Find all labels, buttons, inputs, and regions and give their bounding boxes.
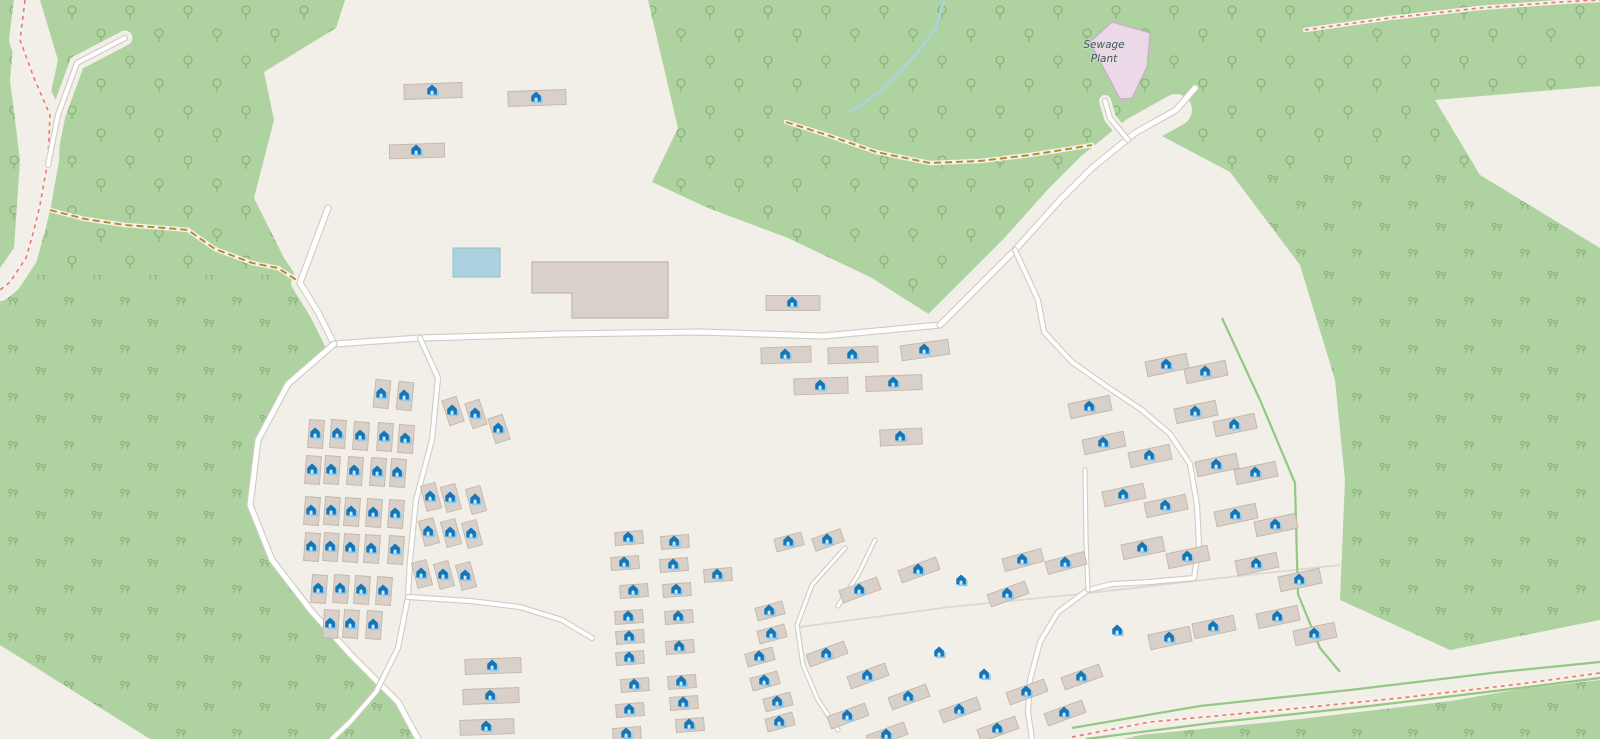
cabin xyxy=(440,484,461,513)
cabin xyxy=(465,486,486,515)
cabin xyxy=(615,531,644,546)
cabin xyxy=(1166,545,1210,568)
cabin xyxy=(1144,494,1188,517)
cabin xyxy=(396,381,414,410)
cabin xyxy=(1234,461,1278,484)
cabin xyxy=(388,536,405,565)
cabin xyxy=(1293,622,1337,645)
cabin xyxy=(1184,360,1228,383)
cabin xyxy=(939,697,981,723)
cabin xyxy=(898,557,940,583)
cabin xyxy=(508,89,566,106)
cabin xyxy=(750,671,780,691)
cabin xyxy=(755,601,785,621)
cabin xyxy=(660,558,689,573)
camp-inner-branch xyxy=(408,597,592,638)
cabin xyxy=(377,423,394,452)
map-canvas[interactable]: Sewage Plant xyxy=(0,0,1600,739)
cabin xyxy=(1195,453,1239,476)
cabin xyxy=(376,577,393,606)
cabin xyxy=(1256,605,1300,628)
cabin xyxy=(398,425,415,454)
cabin xyxy=(1082,431,1126,454)
cabin xyxy=(663,583,692,598)
cabin xyxy=(704,568,733,583)
cabin xyxy=(343,610,360,639)
cabin xyxy=(665,610,694,625)
cabin xyxy=(1044,700,1086,726)
cabin xyxy=(304,497,321,526)
cabin xyxy=(442,396,464,425)
cabin xyxy=(461,520,482,549)
cabin xyxy=(440,519,461,548)
cabin xyxy=(305,456,322,485)
cabin xyxy=(774,532,804,552)
cabin xyxy=(389,143,444,159)
main-building xyxy=(532,262,668,318)
cabin xyxy=(1145,353,1189,376)
cabin xyxy=(828,346,879,364)
cabin xyxy=(611,556,640,571)
cabin xyxy=(343,534,360,563)
cabin xyxy=(987,581,1029,607)
cabin xyxy=(354,576,371,605)
cabin xyxy=(847,663,889,689)
cabin xyxy=(1102,483,1146,506)
cabin xyxy=(794,377,849,395)
cabin xyxy=(620,584,649,599)
cabin xyxy=(745,647,775,667)
cabin xyxy=(364,535,381,564)
cabin xyxy=(676,718,705,733)
cabin xyxy=(757,624,787,644)
cabin xyxy=(460,719,514,736)
forest-symbols xyxy=(0,0,460,275)
cabin xyxy=(324,497,341,526)
cabin xyxy=(888,684,930,710)
cabin xyxy=(324,456,341,485)
cabin xyxy=(366,611,383,640)
cabin xyxy=(1068,395,1112,418)
cabin xyxy=(666,640,695,655)
cabin xyxy=(304,533,321,562)
cabin xyxy=(977,716,1019,739)
cabin xyxy=(900,339,950,361)
cabin xyxy=(615,610,644,625)
cabin xyxy=(827,703,869,729)
cabin xyxy=(404,82,462,99)
cabin xyxy=(488,414,510,443)
cabin xyxy=(621,678,650,693)
cabin xyxy=(323,610,340,639)
bottom-center-link-a xyxy=(797,548,845,730)
cabin xyxy=(1174,400,1218,423)
cabin xyxy=(1121,536,1165,559)
cabin xyxy=(839,577,881,603)
cabin xyxy=(373,379,391,408)
cabin xyxy=(1213,413,1257,436)
cabin xyxy=(418,518,439,547)
cabin xyxy=(420,483,441,512)
pond xyxy=(453,248,500,277)
hut-icon xyxy=(979,669,990,681)
cabin xyxy=(1045,552,1087,575)
cabin xyxy=(616,630,645,645)
cabin xyxy=(388,500,405,529)
cabin xyxy=(433,561,454,590)
cabin xyxy=(1148,626,1192,649)
cabin xyxy=(1002,549,1044,572)
cabin xyxy=(455,562,476,591)
cabin xyxy=(763,692,793,712)
map-render-layer xyxy=(0,0,1600,739)
cabin xyxy=(370,458,387,487)
cabin xyxy=(323,533,340,562)
cabin xyxy=(613,727,642,739)
cabin xyxy=(812,529,845,551)
cabin xyxy=(766,296,820,311)
cabin xyxy=(344,498,361,527)
cabin xyxy=(1214,503,1258,526)
cabin xyxy=(668,675,697,690)
cabin xyxy=(465,399,487,428)
cabin xyxy=(880,428,923,446)
hut-icon xyxy=(956,575,967,587)
cabin xyxy=(347,457,364,486)
cabin xyxy=(806,641,848,667)
cabin xyxy=(616,703,645,718)
cabin xyxy=(411,560,432,589)
hut-icon xyxy=(934,647,945,659)
cabin xyxy=(765,712,795,732)
cabin xyxy=(308,420,325,449)
cabin xyxy=(761,346,812,364)
cabin xyxy=(390,459,407,488)
cabin xyxy=(1254,513,1298,536)
cabin xyxy=(661,535,690,550)
cabin xyxy=(866,375,922,392)
cabin xyxy=(670,696,699,711)
cabin xyxy=(463,688,519,705)
cabin xyxy=(1192,615,1236,638)
cabin xyxy=(1061,664,1103,690)
cabin xyxy=(353,422,370,451)
cabin xyxy=(330,420,347,449)
cabin xyxy=(311,575,328,604)
cabin xyxy=(616,651,645,666)
cabin xyxy=(333,575,350,604)
cabin xyxy=(1128,444,1172,467)
cabin xyxy=(465,658,521,675)
hut-icon xyxy=(1112,625,1123,637)
cabin xyxy=(866,722,908,739)
cabin xyxy=(366,499,383,528)
